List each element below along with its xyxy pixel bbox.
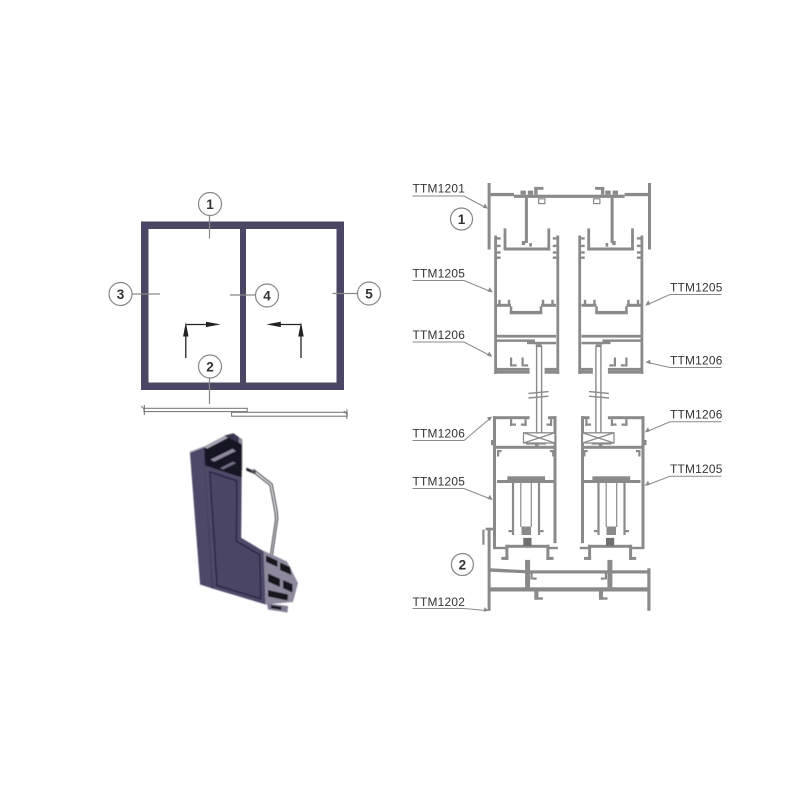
svg-text:5: 5 [365,286,373,301]
svg-text:TTM1206: TTM1206 [413,427,466,441]
svg-text:2: 2 [459,557,467,572]
svg-text:TTM1202: TTM1202 [413,595,466,609]
svg-text:1: 1 [458,212,466,227]
svg-text:2: 2 [206,359,214,374]
svg-text:TTM1206: TTM1206 [670,354,723,368]
svg-text:TTM1206: TTM1206 [413,328,466,342]
svg-text:TTM1206: TTM1206 [670,408,723,422]
svg-text:1: 1 [206,197,214,212]
svg-text:TTM1201: TTM1201 [413,182,466,196]
svg-text:4: 4 [263,288,271,303]
svg-text:3: 3 [117,287,125,302]
svg-text:TTM1205: TTM1205 [413,267,466,281]
svg-text:TTM1205: TTM1205 [413,475,466,489]
svg-text:TTM1205: TTM1205 [670,462,723,476]
svg-text:TTM1205: TTM1205 [670,281,723,295]
